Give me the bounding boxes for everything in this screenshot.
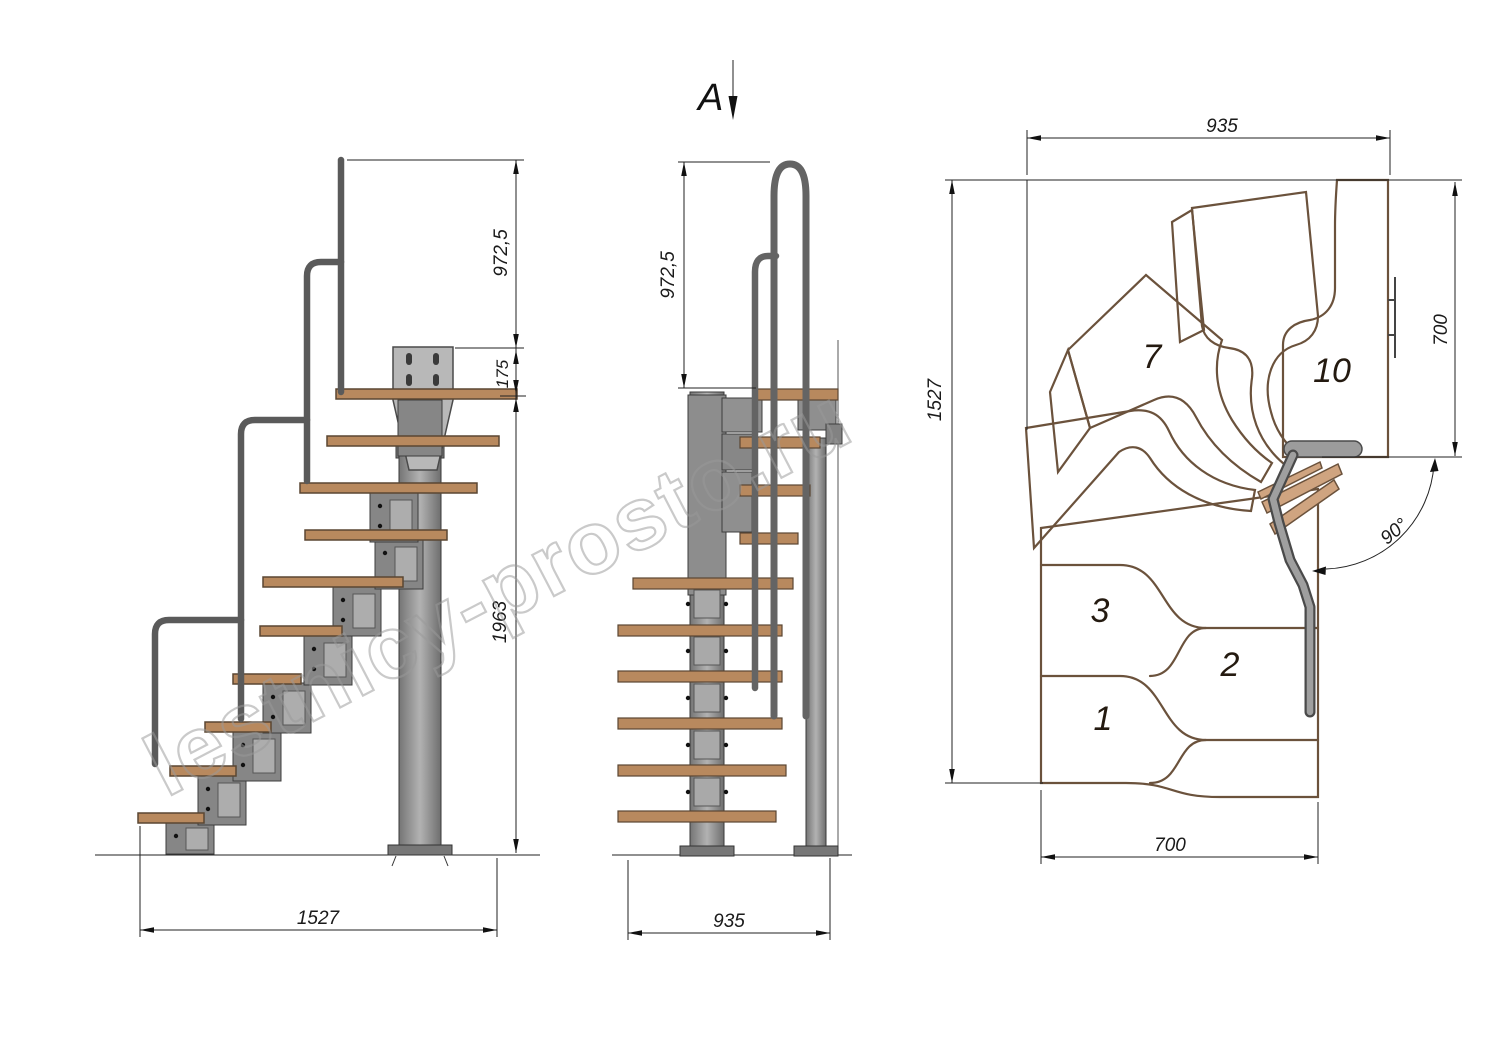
dim-depth-right-label: 700: [1431, 314, 1452, 346]
dim-rail-height-label: 972,5: [658, 251, 679, 299]
step-number-7: 7: [1143, 338, 1163, 376]
tread-9-shape: [1192, 192, 1318, 464]
dim-width-label: 935: [713, 911, 745, 932]
central-base-flange: [680, 846, 734, 856]
tread-7-shape: [1068, 275, 1272, 482]
plan-treads: [1026, 180, 1388, 797]
step-number-3: 3: [1091, 592, 1110, 630]
drawing-sheet: 972,5 175 1963 1527 A: [0, 0, 1500, 1061]
staircase-technical-drawing: 972,5 175 1963 1527 A: [0, 0, 1500, 1061]
dim-rail-height-label: 972,5: [491, 229, 512, 277]
anchor-tick: [392, 856, 396, 866]
lower-flight-shape: [1041, 489, 1318, 797]
right-base-flange: [794, 846, 838, 856]
dim-angle-label: 90°: [1377, 514, 1413, 549]
tread-10-shape: [1283, 180, 1388, 457]
dim-width-top-label: 935: [1206, 116, 1238, 137]
column-base-flange: [388, 845, 452, 855]
section-arrow-head: [729, 96, 738, 120]
tread-8-edge: [1172, 210, 1204, 342]
tread-dividers: [1041, 565, 1318, 783]
section-marker-label: A: [696, 77, 723, 119]
step-number-2: 2: [1220, 646, 1240, 684]
step-number-1: 1: [1094, 700, 1113, 738]
dim-length-label: 1527: [297, 908, 341, 929]
step-number-10: 10: [1313, 352, 1351, 390]
dim-landing-drop-label: 175: [493, 359, 512, 388]
anchor-tick: [444, 856, 448, 866]
tread-5-shape: [1026, 410, 1255, 548]
tread-6-edge: [1050, 350, 1090, 472]
dim-length-left-label: 1527: [925, 377, 946, 421]
plan-view: 7 10 3 2 1 935 700: [925, 116, 1462, 864]
dim-width-bottom-label: 700: [1154, 835, 1186, 856]
